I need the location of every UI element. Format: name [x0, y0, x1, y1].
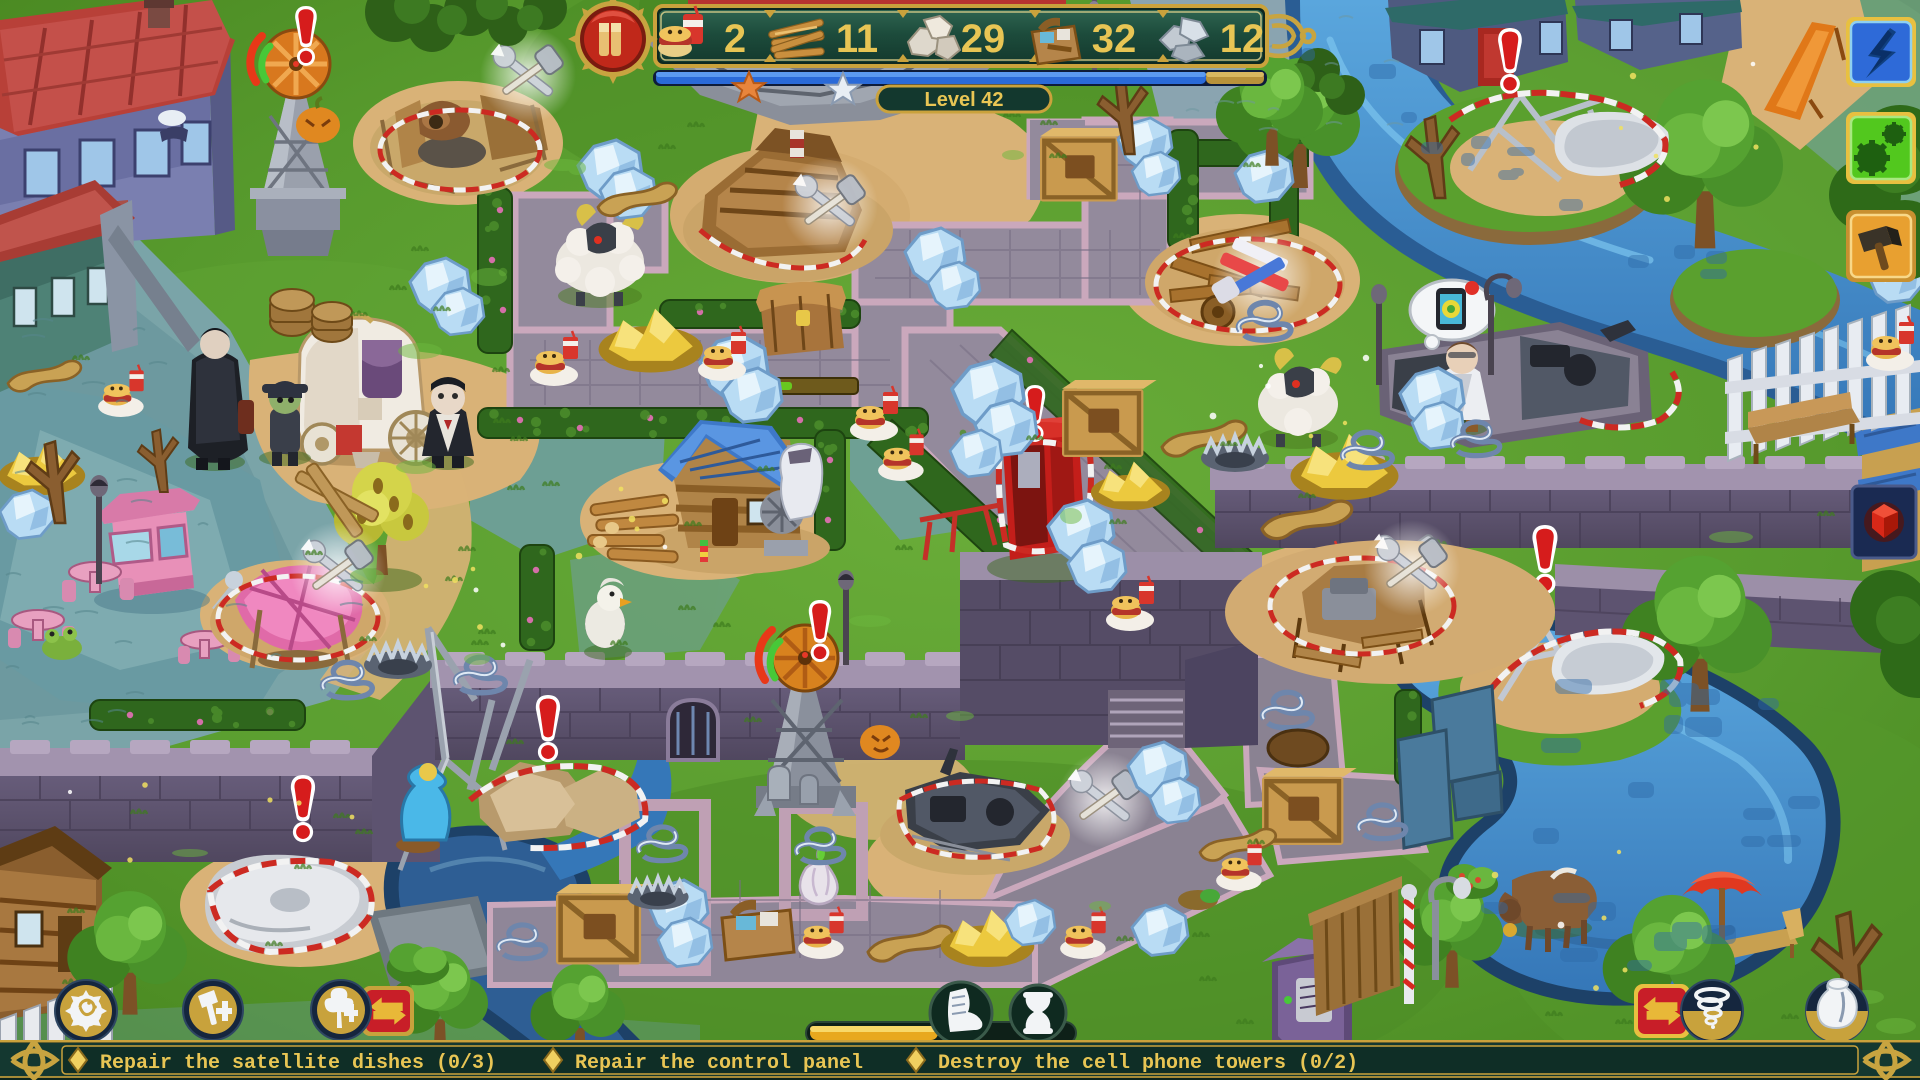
svg-text:12: 12 [1220, 17, 1265, 61]
svg-text:29: 29 [961, 17, 1006, 61]
svg-text:Repair the satellite dishes (0: Repair the satellite dishes (0/3) [100, 1052, 496, 1075]
svg-text:Level 42: Level 42 [925, 89, 1004, 111]
svg-text:Destroy the cell phone towers: Destroy the cell phone towers (0/2) [938, 1052, 1358, 1075]
svg-text:2: 2 [724, 17, 746, 61]
svg-text:11: 11 [836, 17, 878, 61]
svg-text:Repair the control panel: Repair the control panel [575, 1052, 863, 1075]
svg-text:32: 32 [1092, 17, 1137, 61]
